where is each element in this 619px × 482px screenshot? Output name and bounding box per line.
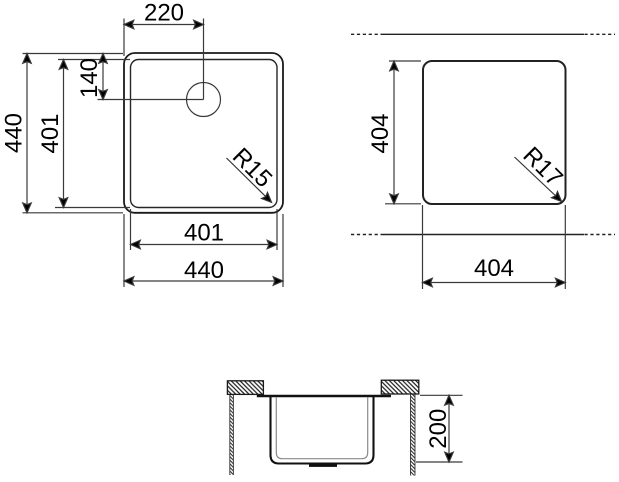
svg-text:200: 200 bbox=[425, 409, 452, 449]
svg-text:220: 220 bbox=[144, 0, 184, 27]
svg-text:440: 440 bbox=[184, 257, 224, 284]
svg-text:401: 401 bbox=[184, 220, 224, 247]
svg-text:440: 440 bbox=[1, 113, 28, 153]
svg-text:140: 140 bbox=[76, 58, 103, 98]
svg-text:404: 404 bbox=[474, 255, 514, 282]
svg-text:401: 401 bbox=[37, 113, 64, 153]
svg-text:404: 404 bbox=[367, 113, 394, 153]
